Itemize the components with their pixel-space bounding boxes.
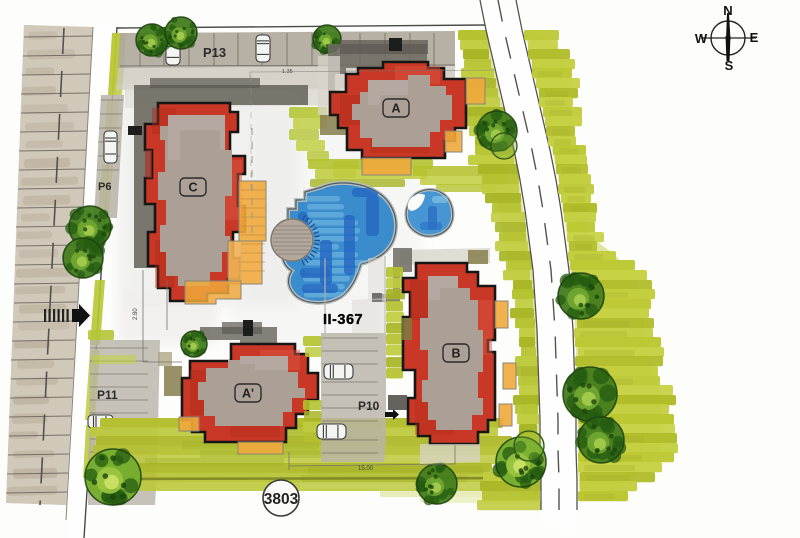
svg-text:S: S bbox=[725, 58, 734, 73]
svg-text:E: E bbox=[750, 30, 759, 45]
svg-text:A: A bbox=[391, 102, 400, 116]
svg-text:N: N bbox=[723, 3, 732, 18]
svg-text:P11: P11 bbox=[97, 388, 118, 402]
svg-text:3803: 3803 bbox=[264, 491, 299, 508]
svg-text:P6: P6 bbox=[98, 181, 111, 193]
svg-text:P10: P10 bbox=[358, 399, 380, 413]
svg-text:P13: P13 bbox=[203, 45, 226, 60]
svg-text:W: W bbox=[695, 31, 708, 46]
svg-text:A': A' bbox=[242, 387, 254, 401]
svg-text:II-367: II-367 bbox=[323, 312, 363, 328]
svg-text:2.80: 2.80 bbox=[133, 308, 139, 320]
svg-text:B: B bbox=[451, 347, 460, 361]
svg-text:15.00: 15.00 bbox=[358, 466, 374, 472]
svg-text:C: C bbox=[188, 181, 197, 195]
svg-text:1.35: 1.35 bbox=[282, 69, 293, 75]
